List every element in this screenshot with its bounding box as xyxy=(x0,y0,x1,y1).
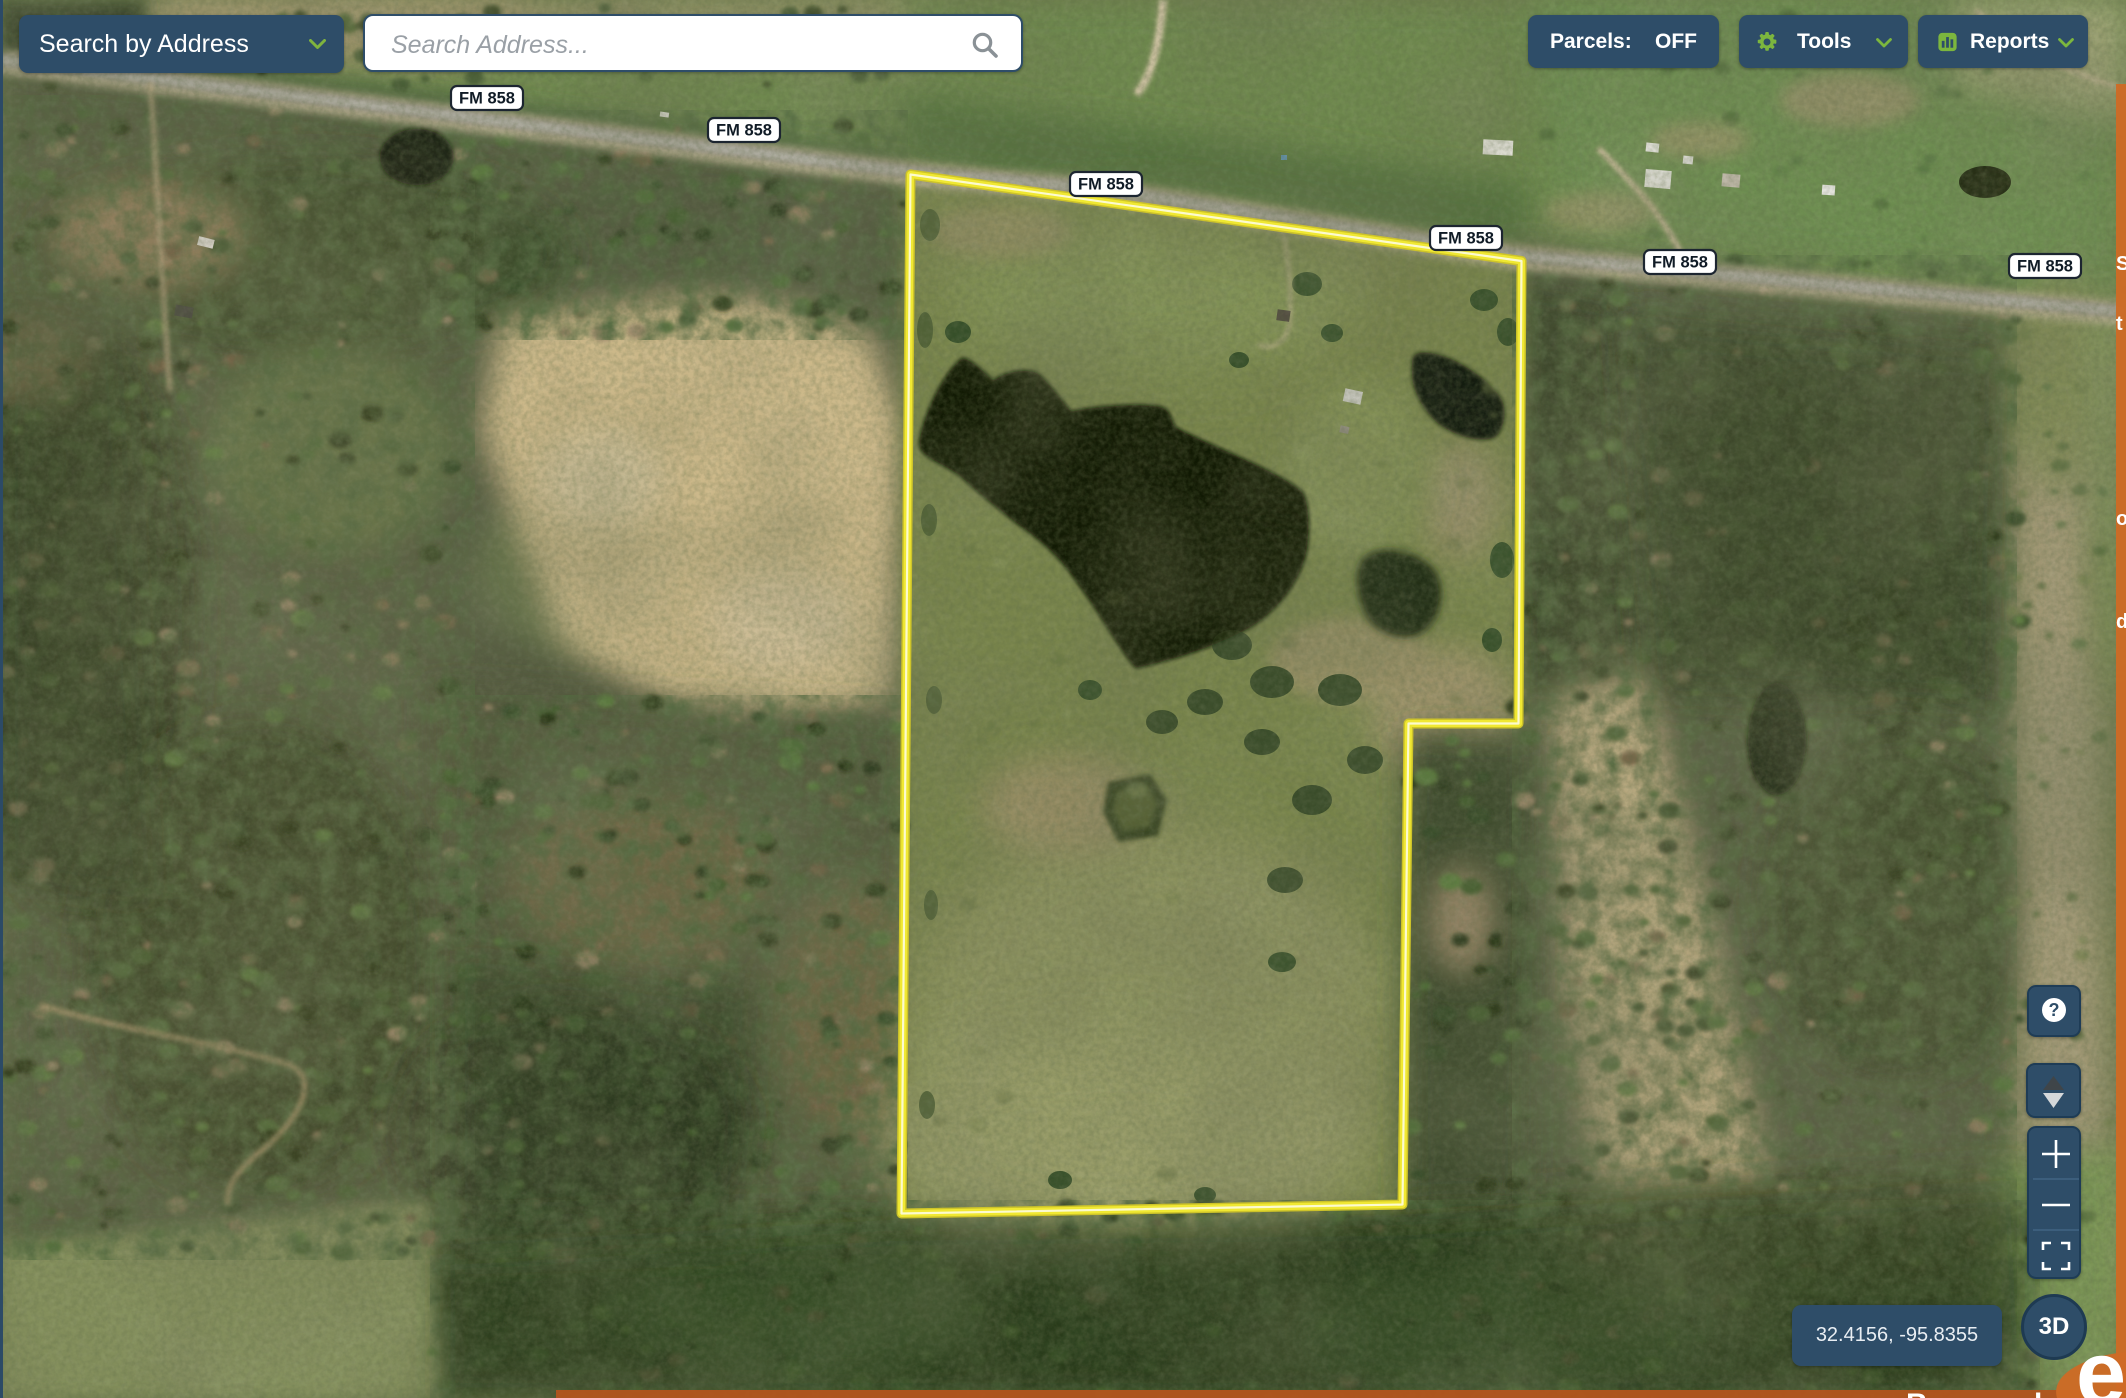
svg-text:S: S xyxy=(2116,253,2126,275)
svg-text:t: t xyxy=(2116,313,2123,335)
svg-text:FM 858: FM 858 xyxy=(2017,258,2073,276)
svg-text:o: o xyxy=(2116,508,2126,530)
svg-text:FM 858: FM 858 xyxy=(1652,254,1708,272)
svg-text:d: d xyxy=(2116,611,2126,633)
svg-text:FM 858: FM 858 xyxy=(716,122,772,140)
svg-text:FM 858: FM 858 xyxy=(459,90,515,108)
svg-text:FM 858: FM 858 xyxy=(1078,176,1134,194)
svg-text:FM 858: FM 858 xyxy=(1438,230,1494,248)
